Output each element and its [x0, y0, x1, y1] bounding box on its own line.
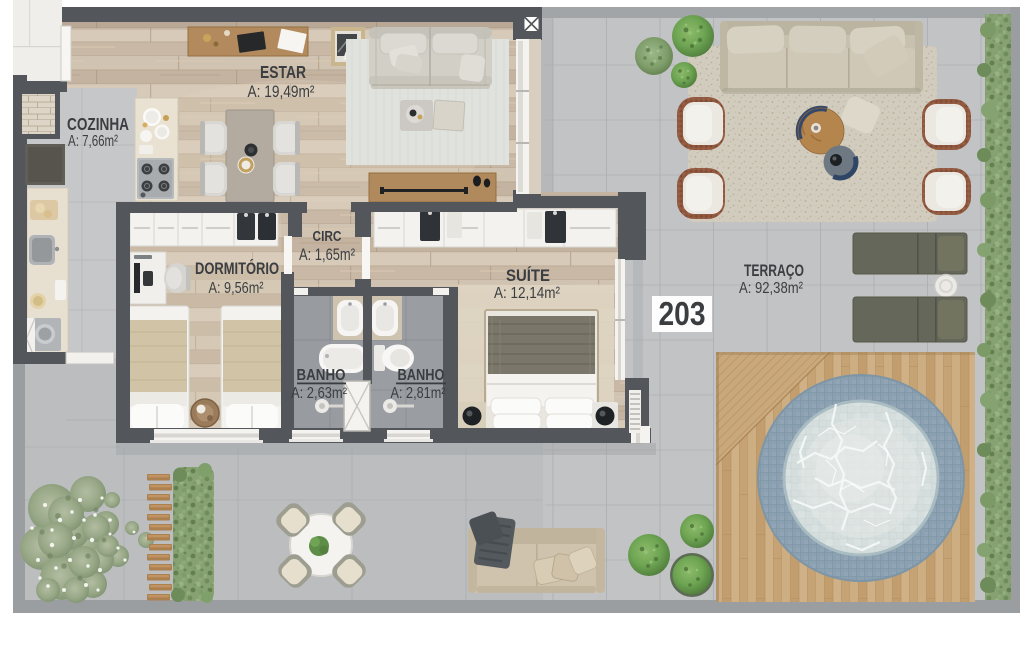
svg-text:BANHO: BANHO — [297, 367, 346, 384]
svg-text:A: 2,81m²: A: 2,81m² — [391, 385, 446, 402]
svg-text:A: 2,63m²: A: 2,63m² — [291, 385, 347, 402]
svg-text:BANHO: BANHO — [398, 367, 445, 384]
svg-text:A: 9,56m²: A: 9,56m² — [209, 280, 265, 297]
svg-text:A: 12,14m²: A: 12,14m² — [494, 285, 561, 302]
svg-text:A: 1,65m²: A: 1,65m² — [299, 246, 355, 264]
svg-text:A: 7,66m²: A: 7,66m² — [68, 133, 118, 150]
svg-text:COZINHA: COZINHA — [67, 114, 129, 134]
svg-text:A: 19,49m²: A: 19,49m² — [248, 83, 315, 101]
svg-text:CIRC: CIRC — [313, 229, 342, 245]
svg-text:SUÍTE: SUÍTE — [506, 266, 550, 285]
svg-text:ESTAR: ESTAR — [260, 62, 306, 82]
svg-text:DORMITÓRIO: DORMITÓRIO — [195, 259, 279, 278]
svg-text:203: 203 — [659, 295, 706, 332]
svg-text:TERRAÇO: TERRAÇO — [744, 261, 804, 280]
svg-text:A: 92,38m²: A: 92,38m² — [739, 280, 804, 297]
